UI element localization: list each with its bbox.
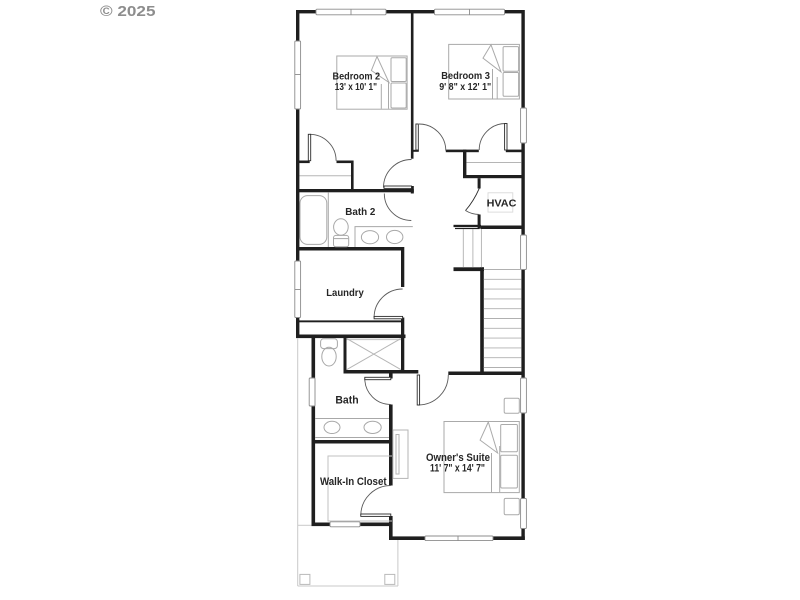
svg-text:HVAC: HVAC: [487, 198, 517, 209]
svg-text:Bedroom 3: Bedroom 3: [441, 71, 490, 82]
svg-text:© 2025: © 2025: [100, 4, 156, 20]
svg-text:Walk-In Closet: Walk-In Closet: [320, 476, 387, 488]
svg-text:Bedroom 2: Bedroom 2: [333, 72, 381, 83]
svg-text:13' x 10' 1": 13' x 10' 1": [335, 82, 377, 93]
svg-text:11' 7" x 14' 7": 11' 7" x 14' 7": [430, 462, 485, 474]
svg-text:Laundry: Laundry: [326, 288, 364, 299]
svg-text:9' 8" x 12' 1": 9' 8" x 12' 1": [439, 82, 491, 93]
svg-text:Bath 2: Bath 2: [345, 207, 375, 218]
svg-text:Bath: Bath: [335, 395, 358, 407]
